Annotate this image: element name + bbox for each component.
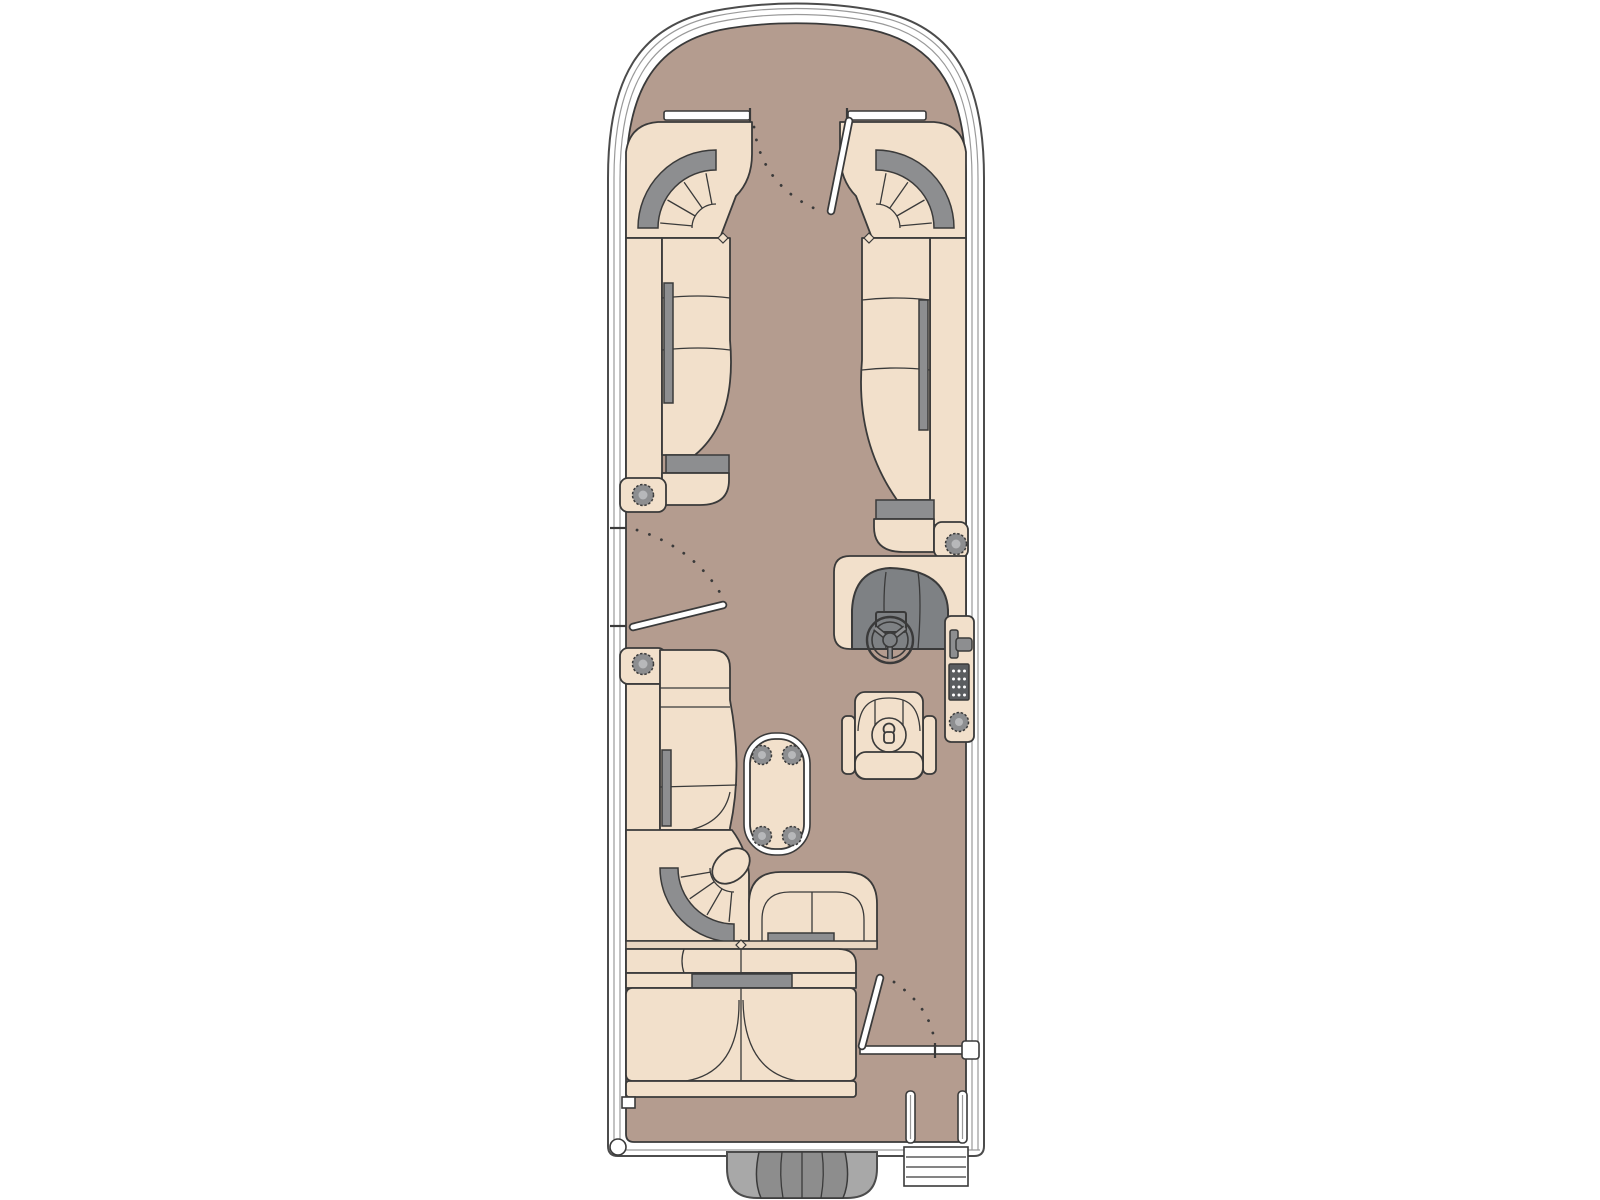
port-lounge: [620, 233, 731, 512]
starboard-lounge-side-trim: [919, 300, 928, 430]
port-lounge-side-trim: [664, 283, 673, 403]
pontoon-floorplan-diagram: [0, 0, 1600, 1200]
port-lounge-armrest: [666, 455, 729, 473]
outboard-motor: [727, 1152, 877, 1198]
starboard-lounge: [861, 233, 968, 558]
aft-bench: [626, 949, 856, 1097]
stern-corner-cap: [610, 1139, 626, 1155]
aft-bench-valance: [626, 1081, 856, 1097]
stern-rail: [860, 1046, 968, 1054]
stern-gate-latch: [962, 1041, 979, 1059]
starboard-lounge-armrest: [876, 500, 934, 519]
chair-armrest-port: [842, 716, 855, 774]
chair-backrest: [855, 752, 923, 779]
port-lounge-end-cushion: [662, 473, 729, 505]
port-lounge-backrest: [626, 238, 662, 480]
starboard-lounge-end-cushion: [874, 519, 934, 552]
starboard-lounge-backrest: [930, 238, 966, 525]
captains-chair: [842, 692, 936, 779]
pedestal-table-with-cupholders: [744, 733, 810, 855]
aft-jump-seat: [749, 872, 877, 948]
chair-armrest-starboard: [923, 716, 936, 774]
aft-bench-trim: [692, 974, 792, 988]
floorplan-canvas: [0, 0, 1600, 1200]
port-aft-side-trim: [662, 750, 671, 826]
bow-fence-port-rail: [664, 111, 750, 120]
stern-cleat: [622, 1097, 635, 1108]
switch-panel: [949, 664, 969, 700]
helm-side-panel: [945, 616, 974, 742]
bow-fence-starboard-rail: [848, 111, 926, 120]
